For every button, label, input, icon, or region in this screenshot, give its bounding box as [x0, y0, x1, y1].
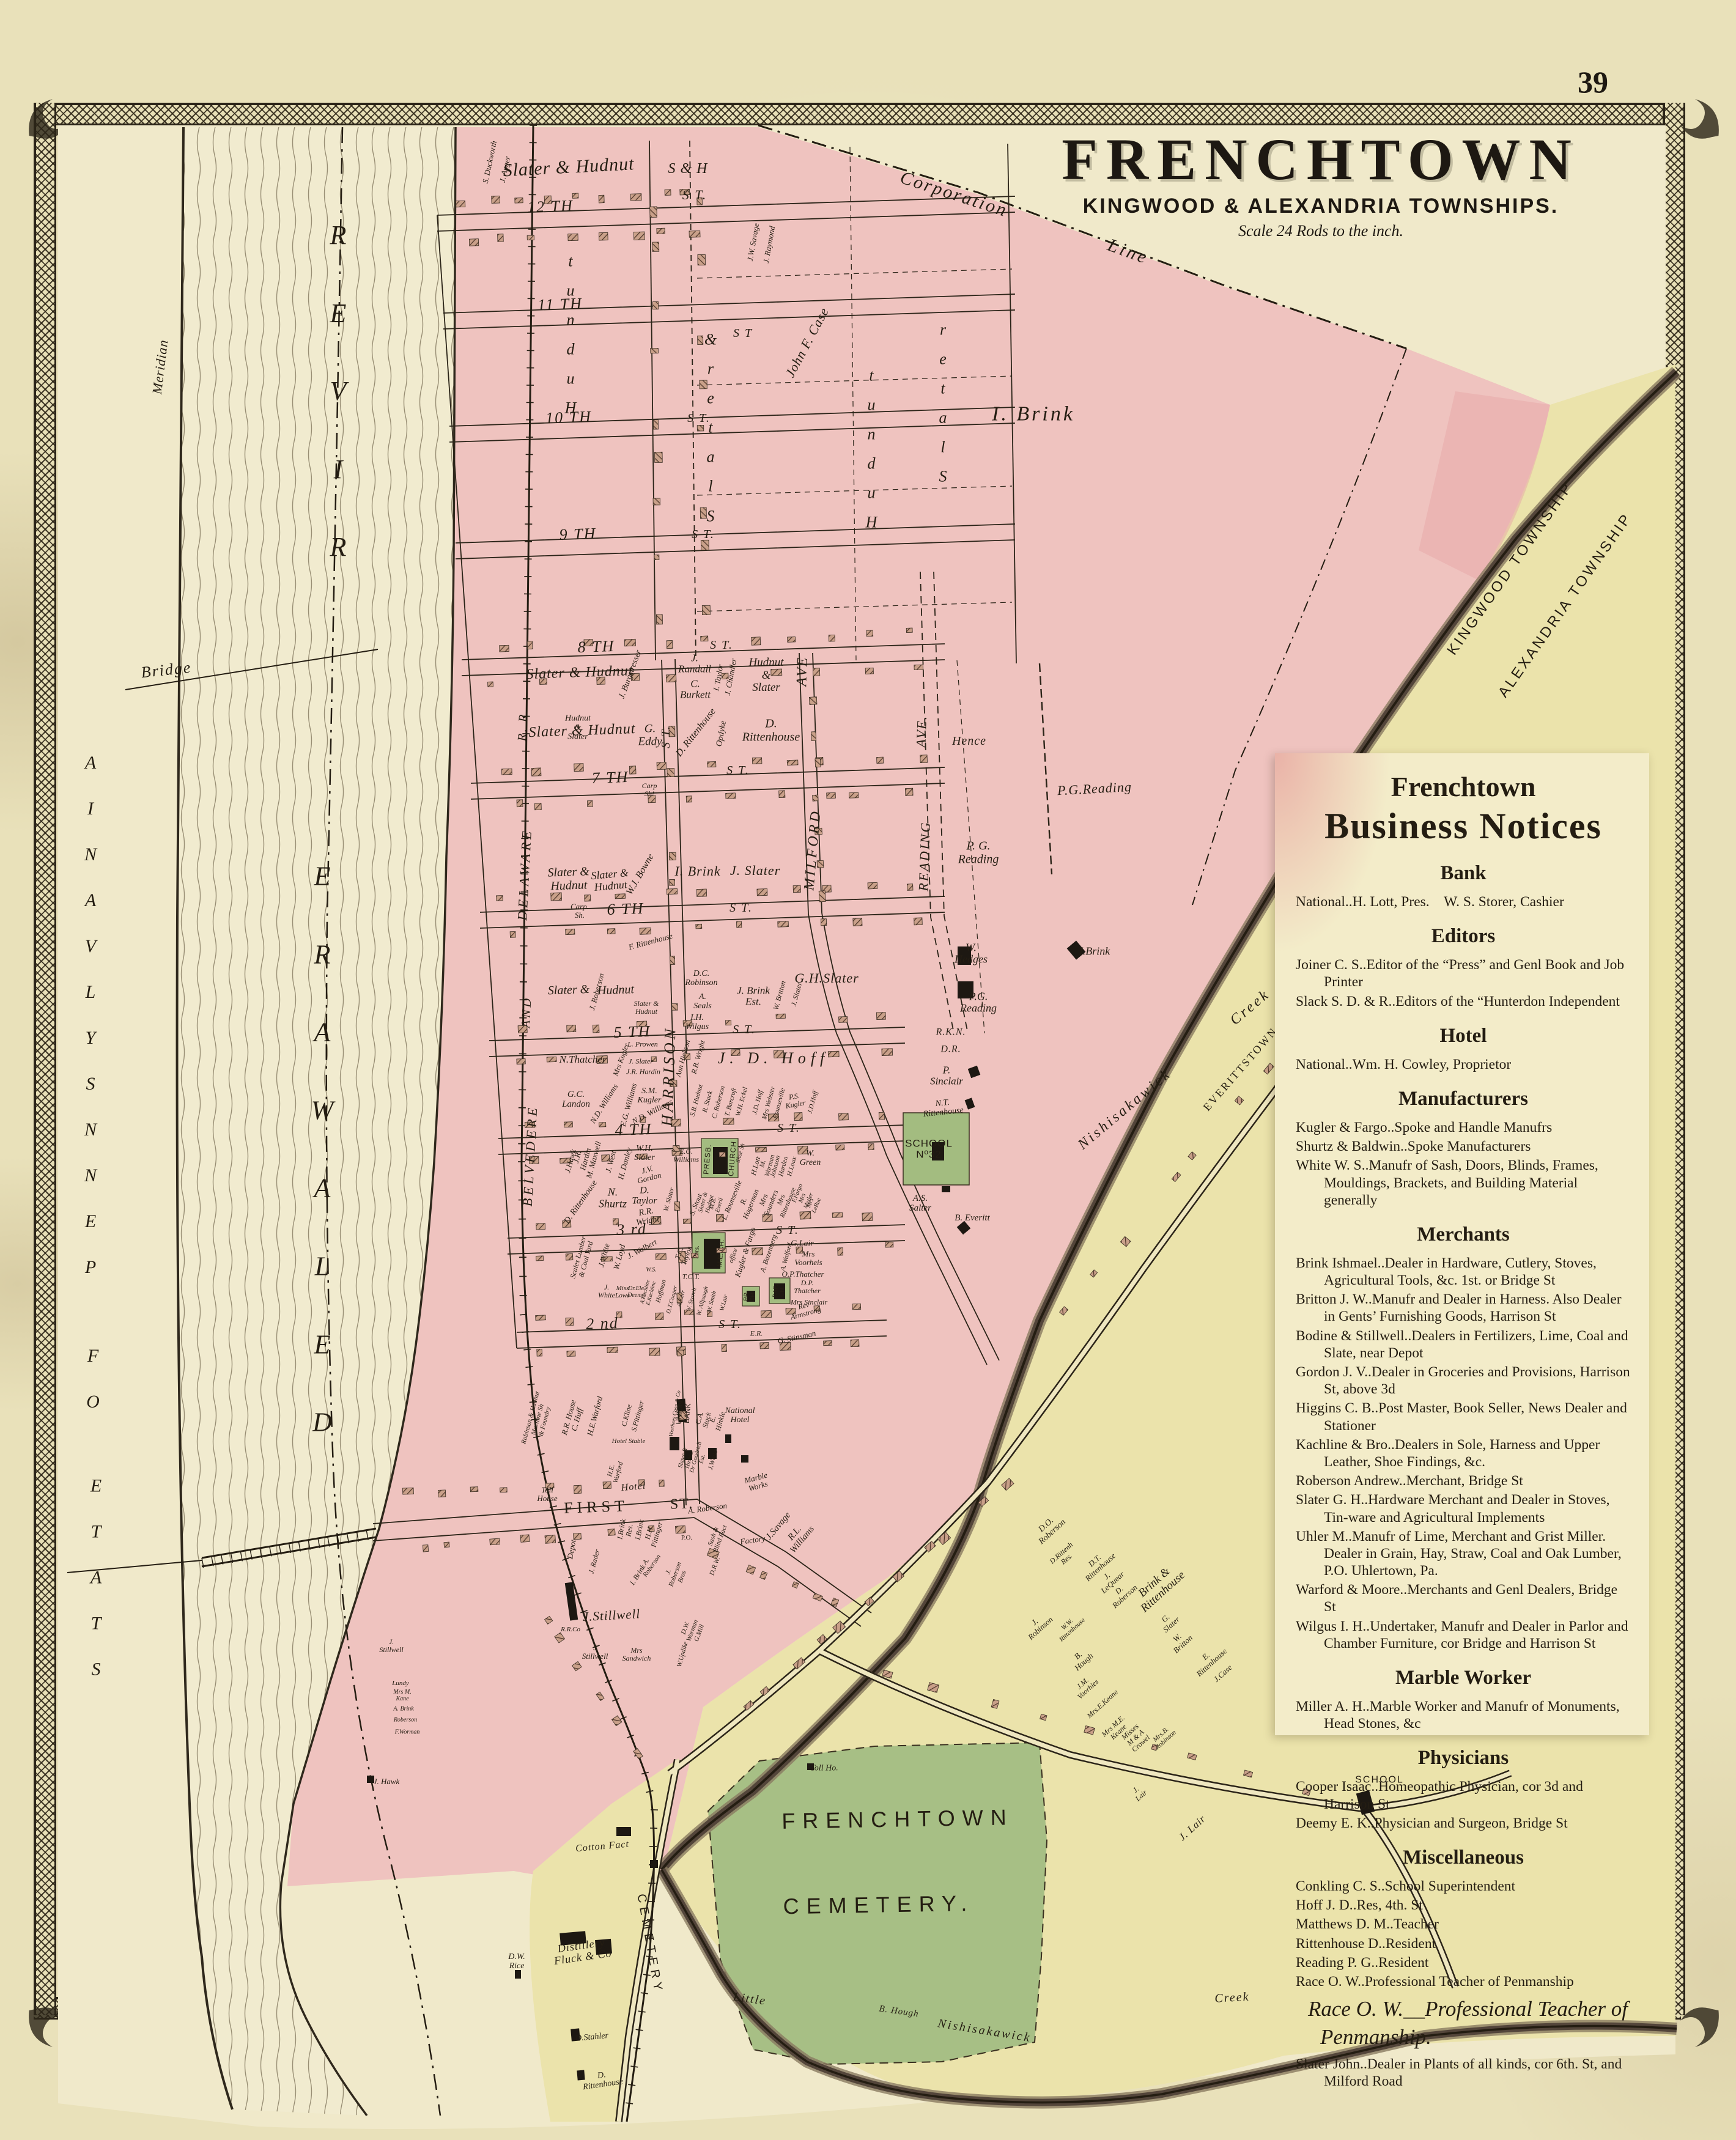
notice-entry: Slack S. D. & R..Editors of the “Hunterd…	[1296, 993, 1631, 1010]
notice-section-heading: Miscellaneous	[1296, 1847, 1631, 1869]
map-label: DELAWARE	[515, 828, 534, 921]
map-label: S T.	[718, 1318, 742, 1332]
map-label: Carp Sh!	[642, 782, 657, 798]
map-label: Slater &	[547, 983, 589, 998]
notice-entry: Miller A. H..Marble Worker and Manufr of…	[1296, 1698, 1631, 1732]
map-label: N. Shurtz	[599, 1187, 627, 1211]
map-label: W. Loyd	[612, 1244, 627, 1271]
map-label: Cotton Fact	[575, 1839, 629, 1854]
map-label: A.Kachline E.Kachline	[639, 1279, 657, 1306]
map-label: L. Prowen	[627, 1041, 658, 1049]
map-label: T.C.T.	[682, 1273, 700, 1281]
map-label: S T.	[710, 639, 733, 652]
map-scale-note: Scale 24 Rods to the inch.	[1003, 222, 1639, 240]
map-label: G.H.Slater	[794, 971, 859, 986]
map-label: A. Walford	[780, 1242, 794, 1272]
map-label: D.O. Roberson	[1031, 1511, 1068, 1546]
map-label: J.D.Hoff	[807, 1090, 819, 1115]
atlas-page: CorporationLineR E V I RE R A W A L E DA…	[0, 0, 1736, 2140]
map-label: Mrs Voorheis	[794, 1250, 822, 1267]
map-label: Hotel	[621, 1481, 646, 1494]
map-label: T.C. Taylor	[673, 1243, 694, 1266]
map-label: J.V. Gordon	[634, 1162, 662, 1185]
map-label: D.W. Rice	[508, 1952, 525, 1971]
map-label: N.Thatcher	[560, 1054, 607, 1065]
map-label: D.R.	[940, 1044, 961, 1054]
map-label: J. Hawk	[374, 1777, 400, 1786]
map-label: A. Brink	[393, 1706, 413, 1713]
map-label: S.B. Hudnut	[689, 1084, 704, 1118]
map-label: SCHOOL Nº32	[905, 1138, 953, 1161]
map-label: 7 TH	[591, 769, 629, 787]
map-label: N.T. Rittenhouse	[922, 1097, 964, 1120]
map-label: ALEXANDRIA TOWNSHIP	[1496, 510, 1636, 700]
map-label: J. Slater	[730, 863, 780, 878]
map-label: & r e t a l S	[704, 325, 717, 531]
map-label: O.P.Thatcher	[781, 1270, 824, 1278]
notices-title-line1: Frenchtown	[1296, 770, 1631, 803]
notice-entry: Higgins C. B..Post Master, Book Seller, …	[1296, 1400, 1631, 1434]
map-label: J. Raymond	[762, 226, 777, 264]
notice-section-heading: Editors	[1296, 925, 1631, 948]
notice-section-heading: Hotel	[1296, 1025, 1631, 1047]
map-label: I.H. Wilgus	[685, 1013, 709, 1031]
notice-entry: Joiner C. S..Editor of the “Press” and G…	[1296, 956, 1631, 991]
notice-entry: Hoff J. D..Res, 4th. St	[1296, 1897, 1631, 1914]
map-label: J. Slater	[629, 1058, 653, 1066]
map-label: Slater & Hudnut	[547, 865, 590, 893]
map-label: B. Hough	[878, 2004, 919, 2019]
map-label: National Hotel	[725, 1406, 755, 1425]
map-label: E R A W A L E D	[311, 838, 334, 1462]
map-label: Mrs Sinclair	[791, 1299, 827, 1307]
notice-entry: Roberson Andrew..Merchant, Bridge St	[1296, 1472, 1631, 1489]
map-label: S & H	[668, 161, 708, 177]
map-label: Slater & Hudnut	[634, 1000, 659, 1016]
map-label: B. Everitt	[955, 1213, 989, 1223]
map-label: J. Robinson	[1021, 1609, 1054, 1642]
notice-entry: White W. S..Manufr of Sash, Doors, Blind…	[1296, 1157, 1631, 1209]
map-label: J.Case	[1212, 1663, 1233, 1684]
map-label: 11 TH	[537, 295, 583, 314]
page-number: 39	[1578, 64, 1608, 100]
notice-entry: Deemy E. K..Physician and Surgeon, Bridg…	[1296, 1815, 1631, 1832]
notice-section-heading: Bank	[1296, 862, 1631, 885]
notice-entry: Slater John..Dealer in Plants of all kin…	[1296, 2056, 1631, 2090]
notice-entry: Rittenhouse D..Resident	[1296, 1935, 1631, 1952]
notice-entry: Conkling C. S..School Superintendent	[1296, 1878, 1631, 1895]
map-label: P. Sinclair	[930, 1065, 963, 1088]
map-label: W. Hedges	[955, 942, 988, 966]
map-label: Toll House	[537, 1486, 557, 1503]
map-label: Slater & Hudnut	[526, 663, 633, 683]
map-label: F. Rittenhouse	[627, 932, 673, 952]
notice-entry: Warford & Moore..Merchants and Genl Deal…	[1296, 1581, 1631, 1615]
map-label: S T.	[682, 188, 707, 202]
map-label: P. G. Reading	[958, 839, 999, 866]
map-label: Brink & Rittenhouse	[1130, 1560, 1187, 1615]
map-label: W.J. Bowne	[624, 852, 656, 896]
notice-entry: National..H. Lott, Pres. W. S. Storer, C…	[1296, 893, 1631, 910]
map-label: Sash & Blind Fact	[706, 1522, 729, 1554]
map-label: P.G. Reading	[960, 991, 997, 1015]
map-label: D. Taylor	[632, 1186, 657, 1207]
map-label: W. Britton	[772, 980, 787, 1011]
notices-title-line2: Business Notices	[1296, 805, 1631, 847]
notice-entry: Matthews D. M..Teacher	[1296, 1916, 1631, 1933]
map-label: J.White	[597, 1242, 611, 1268]
map-label: D.C. Robinson	[685, 969, 718, 987]
map-label: I.Brink	[1079, 945, 1110, 957]
map-label: S T.	[692, 528, 715, 542]
map-label: Slater & Hudnut	[591, 867, 630, 894]
map-label: J.R. Hardin	[626, 1068, 660, 1076]
map-label: Lundy	[392, 1680, 409, 1688]
map-label: H.E. Warford	[605, 1459, 625, 1485]
notice-section-heading: Physicians	[1296, 1747, 1631, 1769]
map-label: AVE.	[914, 715, 929, 748]
map-label: t u n d u H	[866, 361, 877, 538]
map-label: 10 TH	[545, 408, 593, 427]
notice-entry: Race O. W..Professional Teacher of Penma…	[1296, 1973, 1631, 1990]
map-label: D. Rittenhouse	[581, 2068, 624, 2092]
map-label: AVE	[794, 656, 811, 687]
notice-entry: Slater G. H..Hardware Merchant and Deale…	[1296, 1491, 1631, 1526]
map-label: W. Green	[800, 1149, 821, 1167]
map-label: G. Stinsman	[777, 1329, 816, 1346]
map-label: B. Hough	[1067, 1645, 1095, 1673]
map-label: Bridge	[140, 659, 192, 682]
notice-entry: Race O. W.__Professional Teacher of Penm…	[1296, 1995, 1631, 2051]
map-label: t u n d u H	[565, 247, 577, 424]
map-label: J. D. Hoff	[718, 1050, 830, 1067]
map-label: S.M. Kugler	[638, 1087, 662, 1105]
map-label: W. Slater	[663, 1187, 676, 1212]
map-label: J. Lair	[1129, 1782, 1149, 1802]
map-label: C. Burkett	[680, 679, 711, 701]
map-label: P.S. Kugler	[783, 1091, 806, 1110]
map-label: S T.	[776, 1224, 799, 1238]
map-label: S. Duckworth	[481, 140, 498, 184]
map-label: 12 TH	[527, 197, 574, 216]
notice-entry: Brink Ishmael..Dealer in Hardware, Cutle…	[1296, 1255, 1631, 1289]
map-label: 5 TH	[613, 1023, 651, 1041]
map-label: J.W. Savage	[746, 223, 761, 262]
map-label: S T	[733, 327, 753, 341]
notice-entry: Uhler M..Manufr of Lime, Merchant and Gr…	[1296, 1528, 1631, 1580]
map-label: W.W. Rittenhouse	[1054, 1612, 1087, 1644]
notice-entry: Reading P. G..Resident	[1296, 1954, 1631, 1971]
map-label: Scales Lumber & Coal Yard	[569, 1235, 595, 1281]
map-label: 9 TH	[559, 525, 597, 544]
map-label: 2 nd	[586, 1315, 619, 1333]
map-label: Creek	[1214, 1991, 1250, 2006]
map-label: J. Rader	[587, 1549, 601, 1575]
map-label: FIRST	[564, 1497, 629, 1517]
map-label: UNION BANK	[674, 1401, 692, 1426]
map-label: Dr Goodrich Est.	[689, 1441, 710, 1475]
map-label: Nishisakawick	[1076, 1066, 1175, 1153]
map-label: Slater & Hudnut	[503, 154, 635, 181]
map-label: A. Bazenberg	[759, 1233, 778, 1273]
map-label: G. Slater	[1156, 1609, 1181, 1634]
map-label: Hudnut & Slater	[749, 657, 784, 695]
map-label: R E V I R	[330, 196, 347, 586]
notice-entry: Britton J. W..Manufr and Dealer in Harne…	[1296, 1291, 1631, 1325]
map-label: D. Rittenhouse	[563, 1179, 599, 1226]
map-label: G. Eddy	[638, 723, 662, 748]
map-label: J. White	[598, 1283, 615, 1299]
map-subtitle: KINGWOOD & ALEXANDRIA TOWNSHIPS.	[1003, 194, 1639, 218]
map-label: D.P. Thatcher	[794, 1279, 820, 1295]
map-label: E.G. Williams	[673, 1148, 699, 1164]
map-label: P.O.	[681, 1535, 692, 1542]
map-label: r e t a l S	[939, 315, 947, 492]
notice-section-heading: Manufacturers	[1296, 1088, 1631, 1110]
map-label: F.Worman	[395, 1730, 420, 1736]
map-label: N.D. Williams	[589, 1082, 620, 1125]
notice-entry: Kachline & Bro..Dealers in Sole, Harness…	[1296, 1436, 1631, 1470]
map-label: Toll Ho.	[810, 1763, 838, 1773]
notice-entry: Shurtz & Baldwin..Spoke Manufacturers	[1296, 1138, 1631, 1155]
map-label: H. Danley	[616, 1146, 633, 1180]
map-label: Mrs Sandwich	[622, 1647, 651, 1662]
business-notices-panel: Frenchtown Business Notices BankNational…	[1275, 753, 1649, 1735]
map-label: G.C. Landon	[562, 1090, 590, 1109]
map-label: J. Stillwell	[379, 1638, 403, 1654]
map-label: MILFORD	[802, 808, 824, 891]
map-label: Opdyke	[715, 720, 728, 748]
map-label: W.H. Slater	[634, 1144, 654, 1162]
map-label: S T.	[777, 1122, 800, 1135]
map-label: Depot	[566, 1539, 577, 1560]
map-label: AND	[520, 995, 534, 1028]
map-label: J. Chandler	[723, 658, 738, 696]
map-label: H.E.Warford	[586, 1395, 605, 1437]
map-label: J. West	[604, 1150, 618, 1174]
map-label: D.Stahler	[575, 2031, 608, 2043]
map-label: Distillery Fluck & Co	[552, 1936, 612, 1968]
map-label: Carp. Sh.	[571, 902, 589, 920]
map-label: PR. CH.	[743, 1290, 757, 1302]
map-label: 8 TH	[577, 638, 615, 656]
map-label: Hotel Stable	[612, 1438, 646, 1445]
map-label: S T.	[687, 412, 711, 426]
map-label: R.B. Wright	[690, 1039, 706, 1075]
map-label: FRENCHTOWN	[781, 1806, 1014, 1833]
map-label: F O	[86, 1333, 100, 1425]
map-label: Mrs M. Kane	[393, 1689, 411, 1703]
map-label: J. Lair	[1176, 1813, 1208, 1843]
map-label: J.Stillwell	[582, 1607, 640, 1624]
map-label: P.G.Reading	[1057, 780, 1132, 798]
map-label: Hoffman	[655, 1279, 668, 1304]
map-label: M.E. CH.	[717, 1239, 726, 1267]
map-label: J. Roberson Bros	[661, 1559, 690, 1590]
map-label: John F. Case	[783, 305, 832, 380]
notice-section-heading: Merchants	[1296, 1223, 1631, 1246]
map-label: PRESB.	[702, 1144, 712, 1175]
map-label: Little	[733, 1991, 767, 2009]
map-label: J Stillwell	[582, 1644, 608, 1661]
map-label: CEMETERY.	[783, 1892, 974, 1919]
map-label: Factory	[740, 1534, 766, 1546]
notice-entry: Wilgus I. H..Undertaker, Manufr and Deal…	[1296, 1618, 1631, 1652]
map-label: I. Taylor	[712, 663, 725, 692]
map-label: J. Walbert	[626, 1238, 658, 1260]
map-label: Line	[1105, 235, 1151, 268]
map-label: 6 TH	[607, 900, 645, 918]
map-label: J.White	[707, 1449, 720, 1470]
map-label: J.M. Voorhies	[1071, 1672, 1100, 1700]
notice-entry: Cooper Isaac..Homeopathic Physician, cor…	[1296, 1778, 1631, 1812]
map-label: E.R.	[750, 1330, 763, 1338]
map-label: I. Brink	[992, 404, 1075, 426]
map-label: Meridian	[150, 339, 171, 395]
notice-entry: Gordon J. V..Dealer in Groceries and Pro…	[1296, 1363, 1631, 1398]
map-label: READING	[916, 821, 933, 891]
map-label: R.K.N.	[936, 1027, 966, 1037]
map-label: A. Seals	[693, 992, 712, 1011]
map-label: Robinson & Hudnut Machine Sh & Foundry	[520, 1391, 555, 1449]
map-label: D. Rittenhouse	[742, 717, 800, 743]
map-label: S T.	[733, 1024, 756, 1037]
notice-section-heading: Marble Worker	[1296, 1667, 1631, 1689]
title-block: FRENCHTOWN KINGWOOD & ALEXANDRIA TOWNSHI…	[1003, 125, 1639, 240]
map-label: S T.	[660, 725, 673, 748]
map-label: D.R.W.	[709, 1556, 722, 1576]
map-label: R.R. Wright	[634, 1206, 660, 1228]
map-label: E T A T S	[90, 1463, 102, 1692]
map-label: W.S.	[646, 1267, 656, 1274]
map-label: D. Rittenhouse	[674, 706, 718, 759]
map-label: I. Brink	[674, 864, 720, 879]
map-label: R.R. House C. Huff	[560, 1399, 586, 1438]
map-label: Pars.	[693, 1245, 701, 1260]
notice-entry: Bodine & Stillwell..Dealers in Fertilize…	[1296, 1327, 1631, 1362]
map-label: I.Brink Res.	[616, 1518, 635, 1541]
notices-body: BankNational..H. Lott, Pres. W. S. Store…	[1296, 862, 1631, 2090]
map-label: Nishisakawick	[937, 2017, 1032, 2045]
map-label: W.Lair	[719, 1294, 729, 1312]
map-title: FRENCHTOWN	[1003, 125, 1639, 193]
map-label: Mrs.B. Robinson	[1150, 1724, 1178, 1751]
map-label: Corporation	[898, 168, 1010, 221]
notice-entry: National..Wm. H. Cowley, Proprietor	[1296, 1056, 1631, 1073]
map-label: BELVEDERE	[520, 1104, 540, 1206]
notice-entry: Kugler & Fargo..Spoke and Handle Manufrs	[1296, 1119, 1631, 1136]
map-label: A I N A V L Y S N N E P	[84, 740, 97, 1290]
map-label: D.Rittenh Res.	[1048, 1541, 1080, 1571]
map-label: S T.	[729, 902, 753, 915]
map-label: Mrs.E.Keane	[1085, 1688, 1120, 1720]
map-label: A.S. Salter	[909, 1194, 931, 1213]
map-label: S T.	[726, 764, 750, 778]
map-label: W.Updike	[676, 1641, 690, 1668]
map-label: R.R.Co	[561, 1626, 580, 1634]
map-label: Creek	[1227, 987, 1273, 1029]
map-label: J. Randall	[678, 653, 711, 676]
map-label: J. Brink Est.	[737, 986, 770, 1008]
map-label: BAP. CH.	[772, 1284, 786, 1298]
map-label: Marble Works	[744, 1470, 770, 1493]
map-label: Hence	[952, 735, 986, 748]
map-label: HARRISON	[659, 1025, 679, 1126]
map-label: H.H. Pittinger	[642, 1519, 664, 1548]
map-label: Roberson	[394, 1718, 417, 1724]
map-label: Hudnut & Slater	[565, 714, 591, 741]
map-label: CEMETERY	[634, 1893, 665, 1996]
